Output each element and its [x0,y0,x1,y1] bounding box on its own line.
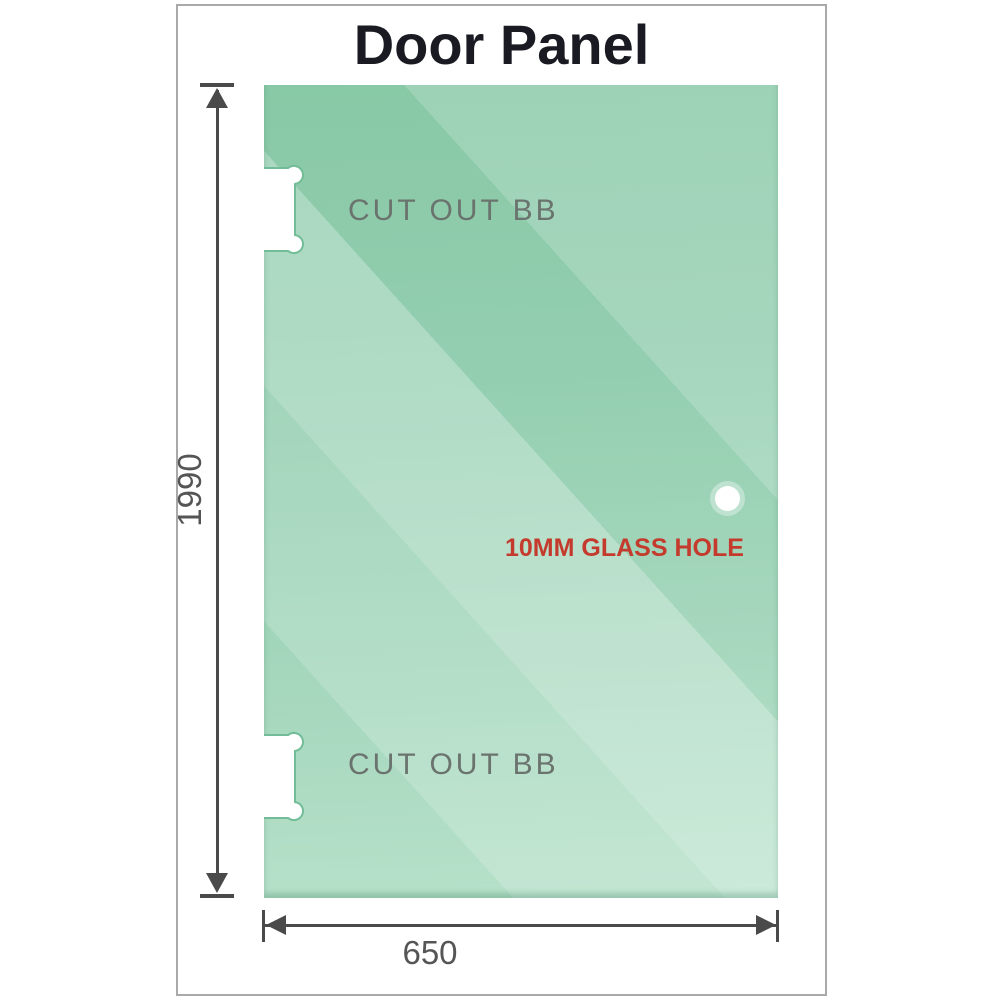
width-dim-line [265,924,776,927]
height-dim-cap-bottom [200,894,234,898]
width-dim-cap-right [776,910,779,942]
height-dim-arrow-down-icon [206,873,228,893]
height-dim-label: 1990 [173,430,207,550]
height-dim-cap-top [200,83,234,87]
height-dim-line [216,90,219,880]
hinge-cutout-bottom-icon [264,733,306,821]
width-dim-arrow-right-icon [756,915,776,935]
diagram-canvas: Door Panel CUT OUT BB CUT OUT BB 10MM GL… [0,0,1000,1000]
hinge-cutout-top-icon [264,166,306,254]
height-dim-arrow-up-icon [206,88,228,108]
cutout-bottom-label: CUT OUT BB [348,748,548,782]
width-dim-label: 650 [390,934,470,972]
page-title: Door Panel [176,12,827,77]
glass-hole-label: 10MM GLASS HOLE [505,534,715,563]
cutout-top-label: CUT OUT BB [348,194,548,228]
width-dim-arrow-left-icon [266,915,286,935]
glass-hole-icon [715,486,740,511]
